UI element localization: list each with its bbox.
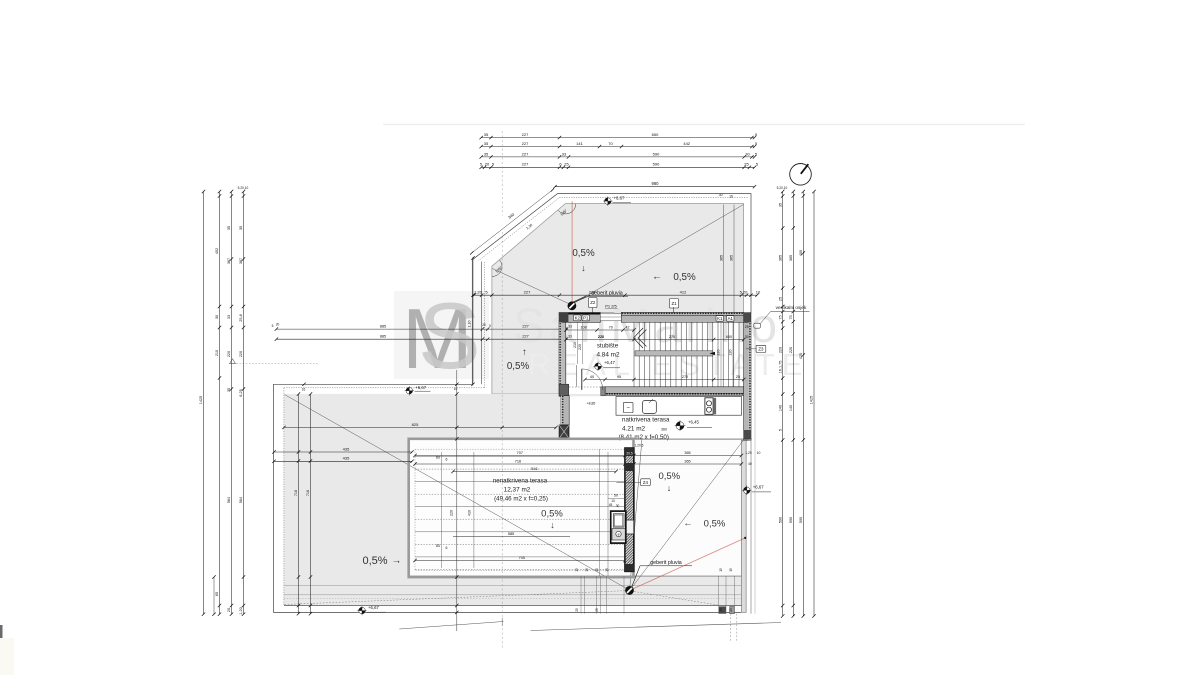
svg-text:227: 227: [522, 132, 529, 137]
svg-text:16: 16: [729, 195, 733, 199]
svg-text:365: 365: [684, 459, 690, 463]
svg-text:+6,67: +6,67: [415, 385, 426, 390]
svg-text:5,20,10: 5,20,10: [777, 186, 788, 190]
svg-text:1,20: 1,20: [474, 290, 483, 295]
svg-text:0,5%: 0,5%: [507, 361, 530, 372]
svg-text:65: 65: [215, 592, 219, 596]
svg-text:35: 35: [239, 226, 243, 230]
svg-text:0,5%: 0,5%: [541, 509, 563, 520]
svg-text:0,5%: 0,5%: [704, 519, 726, 530]
svg-text:↓: ↓: [667, 483, 672, 493]
svg-text:716: 716: [306, 490, 310, 496]
svg-text:Z2: Z2: [590, 300, 596, 305]
svg-text:16: 16: [302, 388, 306, 392]
svg-text:35: 35: [227, 226, 231, 230]
svg-text:30: 30: [745, 151, 750, 156]
svg-text:141: 141: [576, 141, 583, 146]
svg-text:442: 442: [683, 141, 690, 146]
svg-text:0,5%: 0,5%: [673, 272, 696, 283]
svg-text:P1: P1: [583, 316, 589, 321]
svg-text:35: 35: [484, 151, 489, 156]
svg-text:716: 716: [515, 459, 521, 463]
svg-text:590: 590: [653, 151, 660, 156]
svg-text:270: 270: [682, 375, 688, 379]
svg-text:10: 10: [756, 290, 761, 295]
svg-text:25: 25: [564, 162, 569, 167]
svg-text:650: 650: [652, 132, 659, 137]
svg-text:K1: K1: [717, 316, 723, 321]
svg-text:35: 35: [227, 388, 231, 392]
svg-text:227: 227: [522, 325, 528, 329]
svg-text:10: 10: [611, 499, 615, 503]
svg-text:35: 35: [484, 132, 489, 137]
svg-text:25: 25: [729, 608, 733, 612]
svg-text:stubište: stubište: [597, 343, 619, 350]
svg-text:25,8: 25,8: [239, 314, 243, 321]
svg-text:402: 402: [215, 248, 219, 254]
svg-text:367: 367: [239, 258, 243, 264]
svg-text:+6,45: +6,45: [688, 420, 699, 425]
svg-text:425: 425: [799, 353, 803, 359]
svg-text:5: 5: [272, 324, 274, 328]
svg-text:360: 360: [661, 428, 667, 432]
svg-text:270: 270: [669, 335, 675, 339]
svg-text:412: 412: [680, 290, 687, 295]
svg-text:516: 516: [531, 467, 537, 471]
svg-text:20: 20: [482, 323, 486, 327]
svg-text:365: 365: [684, 451, 690, 455]
svg-text:30: 30: [215, 315, 219, 319]
svg-text:210: 210: [573, 342, 577, 348]
svg-text:12,37 m2: 12,37 m2: [504, 487, 531, 494]
svg-text:25: 25: [778, 297, 782, 301]
svg-text:+8,85: +8,85: [587, 402, 596, 406]
svg-text:SanMarino: SanMarino: [513, 300, 781, 353]
svg-text:220: 220: [717, 350, 721, 356]
svg-text:20: 20: [485, 162, 490, 167]
svg-text:25: 25: [719, 608, 723, 612]
svg-text:108: 108: [580, 325, 586, 329]
svg-text:5: 5: [489, 324, 491, 328]
svg-text:435: 435: [343, 456, 350, 461]
svg-text:365: 365: [730, 255, 734, 261]
svg-text:→: →: [392, 556, 402, 567]
svg-text:25: 25: [744, 162, 749, 167]
svg-text:5,20: 5,20: [740, 290, 749, 295]
svg-text:220: 220: [578, 344, 582, 350]
svg-text:435: 435: [343, 446, 350, 451]
svg-text:A1: A1: [728, 316, 734, 321]
svg-text:45: 45: [609, 503, 613, 507]
svg-text:227: 227: [522, 335, 528, 339]
svg-text:5,20,10: 5,20,10: [238, 186, 249, 190]
svg-text:0,5%: 0,5%: [572, 248, 595, 259]
svg-text:50: 50: [614, 494, 618, 498]
svg-text:30: 30: [616, 504, 620, 508]
svg-text:1,20: 1,20: [239, 607, 243, 614]
svg-text:25: 25: [595, 608, 599, 612]
svg-text:←: ←: [683, 518, 693, 529]
svg-text:20: 20: [227, 608, 231, 612]
svg-text:↓: ↓: [581, 263, 586, 273]
svg-text:4.84 m2: 4.84 m2: [596, 352, 620, 359]
svg-text:30: 30: [745, 335, 749, 339]
svg-text:140: 140: [789, 405, 793, 411]
svg-text:geberit pluvia: geberit pluvia: [650, 560, 682, 566]
svg-text:Z1: Z1: [671, 301, 677, 306]
svg-text:590: 590: [789, 517, 793, 523]
svg-text:33: 33: [562, 151, 567, 156]
svg-text:35: 35: [484, 141, 489, 146]
svg-text:211: 211: [589, 290, 596, 295]
svg-text:70: 70: [609, 325, 613, 329]
svg-text:716: 716: [294, 490, 298, 496]
svg-text:980: 980: [652, 181, 660, 186]
svg-text:564: 564: [227, 497, 231, 503]
svg-text:+6,67: +6,67: [368, 605, 379, 610]
svg-text:0,5%: 0,5%: [658, 471, 680, 482]
svg-text:33: 33: [568, 324, 572, 328]
svg-text:6,25: 6,25: [239, 389, 243, 396]
svg-text:707: 707: [517, 451, 523, 455]
svg-text:885: 885: [380, 335, 386, 339]
svg-text:600: 600: [726, 335, 732, 339]
svg-text:←: ←: [652, 272, 662, 283]
svg-text:+6,47: +6,47: [604, 360, 615, 365]
svg-text:40: 40: [590, 375, 594, 379]
svg-text:83: 83: [436, 544, 440, 548]
svg-text:33: 33: [227, 315, 231, 319]
svg-text:365: 365: [789, 255, 793, 261]
svg-text:220: 220: [227, 351, 231, 357]
svg-text:30: 30: [719, 193, 723, 197]
svg-text:365: 365: [778, 255, 782, 261]
svg-text:40: 40: [748, 462, 752, 466]
svg-text:15: 15: [595, 568, 599, 572]
svg-text:25: 25: [575, 608, 579, 612]
svg-text:ø: ø: [617, 533, 619, 537]
svg-text:83: 83: [436, 455, 440, 459]
svg-text:590: 590: [778, 517, 782, 523]
svg-text:227: 227: [522, 151, 529, 156]
svg-text:400: 400: [799, 250, 803, 256]
svg-text:15: 15: [575, 568, 579, 572]
svg-text:220: 220: [789, 347, 793, 353]
svg-text:220: 220: [239, 351, 243, 357]
svg-text:367: 367: [227, 258, 231, 264]
svg-text:K2: K2: [575, 316, 581, 321]
svg-text:15: 15: [585, 568, 589, 572]
svg-text:140: 140: [778, 405, 782, 411]
svg-text:10: 10: [757, 451, 761, 455]
svg-text:(49,46 m2 x f=0,25): (49,46 m2 x f=0,25): [494, 496, 548, 503]
svg-text:220: 220: [778, 347, 782, 353]
svg-text:1425: 1425: [199, 396, 203, 404]
svg-text:585: 585: [508, 532, 514, 536]
svg-text:6: 6: [446, 546, 448, 550]
svg-text:590: 590: [653, 162, 660, 167]
svg-text:5: 5: [778, 429, 782, 431]
svg-text:227: 227: [522, 162, 529, 167]
svg-text:1,10: 1,10: [468, 321, 472, 328]
svg-text:S: S: [418, 283, 481, 388]
svg-text:0,5%: 0,5%: [362, 555, 387, 567]
svg-text:↓: ↓: [550, 520, 555, 530]
svg-text:70: 70: [608, 141, 613, 146]
svg-text:220: 220: [450, 510, 454, 516]
svg-text:20: 20: [276, 323, 280, 327]
svg-text:590: 590: [799, 517, 803, 523]
svg-text:42: 42: [625, 325, 629, 329]
svg-text:705: 705: [519, 556, 525, 560]
svg-text:P1 2/5: P1 2/5: [605, 304, 617, 309]
svg-text:365: 365: [719, 255, 723, 261]
svg-text:410: 410: [468, 510, 472, 516]
svg-text:33: 33: [568, 335, 572, 339]
svg-text:4.21 m2: 4.21 m2: [622, 426, 646, 433]
svg-text:227: 227: [522, 141, 529, 146]
svg-text:825: 825: [412, 422, 419, 427]
svg-text:↑: ↑: [522, 347, 527, 358]
svg-text:20,5: 20,5: [626, 452, 632, 456]
svg-text:210: 210: [215, 350, 219, 356]
svg-text:35: 35: [778, 203, 782, 207]
svg-text:16,1,75: 16,1,75: [778, 361, 782, 374]
svg-text:885: 885: [380, 325, 386, 329]
svg-text:6: 6: [446, 458, 448, 462]
svg-text:220: 220: [729, 350, 733, 356]
svg-text:227: 227: [524, 290, 531, 295]
svg-text:15: 15: [729, 568, 733, 572]
svg-text:75: 75: [778, 315, 782, 319]
svg-text:nenatkrivena terasa: nenatkrivena terasa: [493, 478, 548, 485]
svg-text:~: ~: [627, 406, 630, 412]
svg-text:1425: 1425: [810, 396, 814, 404]
svg-text:15: 15: [605, 568, 609, 572]
svg-text:564: 564: [239, 497, 243, 503]
svg-text:vertikalni osjek: vertikalni osjek: [776, 305, 807, 310]
svg-text:1,20,5: 1,20,5: [635, 444, 644, 448]
svg-text:+6,67: +6,67: [753, 485, 764, 490]
svg-text:natkrivena terasa: natkrivena terasa: [622, 417, 670, 424]
svg-text:75: 75: [789, 315, 793, 319]
svg-text:Z3: Z3: [758, 347, 764, 352]
svg-text:95: 95: [617, 375, 621, 379]
svg-text:Z4: Z4: [643, 480, 649, 485]
svg-text:+6,67: +6,67: [614, 195, 625, 200]
svg-text:25: 25: [736, 375, 740, 379]
svg-text:15: 15: [719, 568, 723, 572]
svg-text:25: 25: [745, 325, 749, 329]
svg-text:220: 220: [598, 335, 604, 339]
